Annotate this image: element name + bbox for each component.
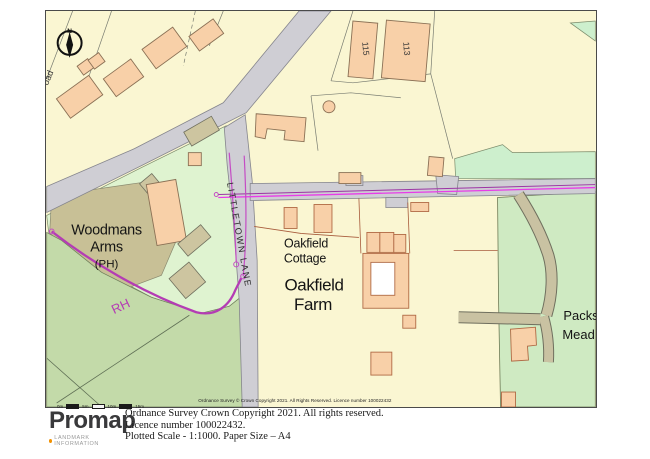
house-number-113: 113: [401, 41, 412, 56]
scale-tick: 10m: [108, 404, 117, 409]
farm-name-line2: Farm: [294, 295, 332, 314]
scale-tick: 15m: [135, 404, 144, 409]
scale-bar: 0m 5m 10m 15m: [57, 404, 144, 409]
scale-segment: [66, 404, 79, 409]
copyright-line3: Plotted Scale - 1:1000. Paper Size – A4: [125, 431, 384, 443]
map-svg: N oad 115 113 Woodmans Arms (PH) LITTLET…: [46, 11, 596, 407]
scale-tick: 5m: [82, 404, 88, 409]
landmark-subtitle-text: LANDMARK INFORMATION: [54, 435, 122, 447]
meadow-name-line2: Mead: [562, 327, 594, 342]
meadow-name-line1: Packs: [563, 308, 596, 323]
copyright-block: Ordnance Survey Crown Copyright 2021. Al…: [125, 408, 384, 447]
promap-logo-block: Promap LANDMARK INFORMATION: [49, 408, 122, 447]
copyright-line2: Licence number 100022432.: [125, 420, 384, 432]
cottage-name-line2: Cottage: [284, 251, 326, 265]
scale-segment: [92, 404, 105, 409]
scale-tick: 0m: [57, 404, 63, 409]
map-canvas: N oad 115 113 Woodmans Arms (PH) LITTLET…: [45, 10, 597, 408]
house-number-115: 115: [360, 41, 371, 56]
landmark-dot-icon: [49, 439, 52, 443]
pub-name-line3: (PH): [95, 258, 119, 270]
farm-name-line1: Oakfield: [285, 275, 344, 294]
scale-segment: [119, 404, 132, 409]
footer: Promap LANDMARK INFORMATION Ordnance Sur…: [49, 408, 609, 447]
north-label: N: [67, 28, 72, 35]
copyright-line1: Ordnance Survey Crown Copyright 2021. Al…: [125, 408, 384, 420]
cottage-name-line1: Oakfield: [284, 236, 328, 250]
landmark-subtitle: LANDMARK INFORMATION: [49, 435, 122, 447]
page: N oad 115 113 Woodmans Arms (PH) LITTLET…: [0, 0, 650, 459]
pub-name-line2: Arms: [90, 239, 123, 255]
inline-copyright: Ordnance Survey © Crown Copyright 2021. …: [198, 397, 392, 403]
pub-name-line1: Woodmans: [71, 222, 142, 238]
promap-logo: Promap: [49, 408, 122, 434]
road-stub: [386, 198, 408, 208]
